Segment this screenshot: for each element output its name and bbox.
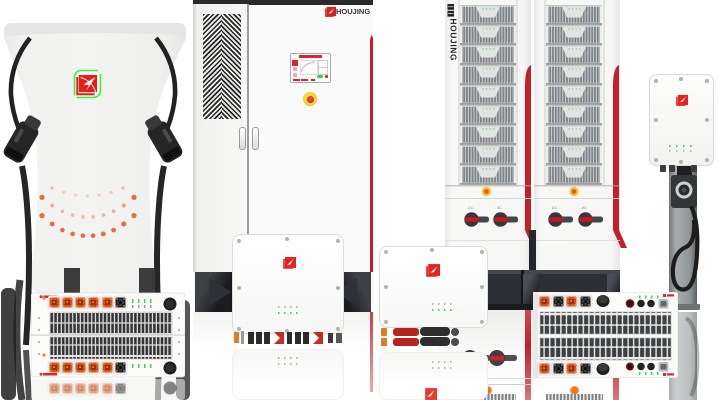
svg-text:DC: DC — [468, 206, 474, 210]
svg-text:AC: AC — [497, 206, 502, 210]
svg-text:DC: DC — [552, 206, 558, 210]
svg-text:AC: AC — [582, 206, 587, 210]
svg-text:HOUJING: HOUJING — [449, 19, 459, 62]
